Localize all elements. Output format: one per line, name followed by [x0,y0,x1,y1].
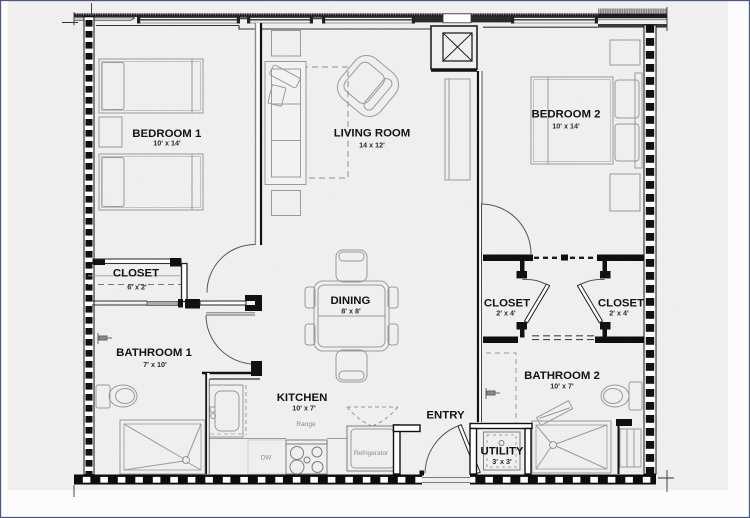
svg-text:BATHROOM 2: BATHROOM 2 [524,370,600,382]
svg-text:2' x 4': 2' x 4' [609,309,629,318]
svg-text:10' x 7': 10' x 7' [550,381,574,390]
svg-text:2' x 4': 2' x 4' [496,309,516,318]
svg-text:3' x 3': 3' x 3' [492,457,512,466]
svg-text:10' x 14': 10' x 14' [153,139,181,148]
svg-text:BATHROOM 1: BATHROOM 1 [116,347,192,359]
svg-text:CLOSET: CLOSET [113,268,159,280]
svg-text:14 x 12': 14 x 12' [359,140,385,149]
svg-text:BEDROOM 2: BEDROOM 2 [532,109,601,121]
svg-text:LIVING ROOM: LIVING ROOM [334,128,411,140]
svg-text:ENTRY: ENTRY [426,410,465,422]
svg-text:6' x 2': 6' x 2' [127,283,147,292]
svg-text:10' x 7': 10' x 7' [292,404,316,413]
svg-text:10' x 14': 10' x 14' [552,122,580,131]
svg-text:8' x 8': 8' x 8' [341,307,361,316]
svg-text:Range: Range [296,421,316,428]
svg-text:7' x 10': 7' x 10' [143,360,167,369]
svg-text:DW: DW [261,455,273,462]
svg-text:KITCHEN: KITCHEN [277,392,328,404]
svg-text:Refrigerator: Refrigerator [354,450,389,457]
svg-text:DINING: DINING [330,295,370,307]
svg-text:UTILITY: UTILITY [480,446,523,458]
